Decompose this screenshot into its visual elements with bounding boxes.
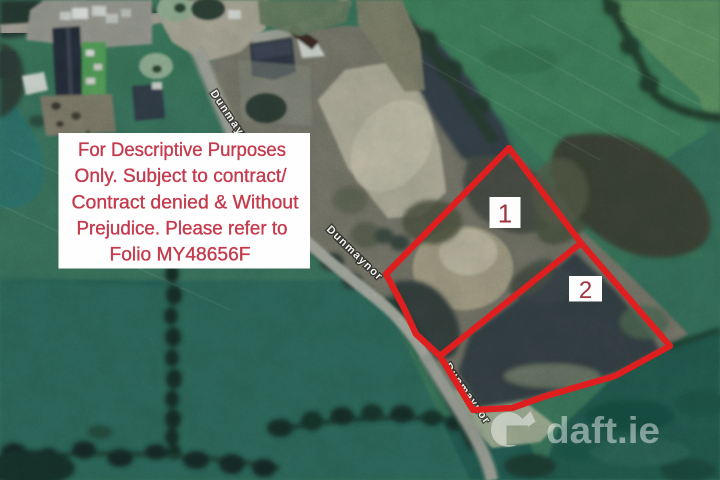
- svg-text:1: 1: [498, 199, 512, 229]
- svg-text:Folio MY48656F: Folio MY48656F: [110, 244, 251, 266]
- svg-text:For Descriptive Purposes: For Descriptive Purposes: [78, 139, 286, 161]
- svg-text:Contract denied & Without: Contract denied & Without: [72, 192, 300, 214]
- svg-text:2: 2: [579, 277, 592, 304]
- svg-text:Prejudice. Please refer to: Prejudice. Please refer to: [77, 218, 288, 240]
- svg-text:daft.ie: daft.ie: [546, 410, 660, 451]
- svg-text:Only. Subject to contract/: Only. Subject to contract/: [75, 165, 288, 187]
